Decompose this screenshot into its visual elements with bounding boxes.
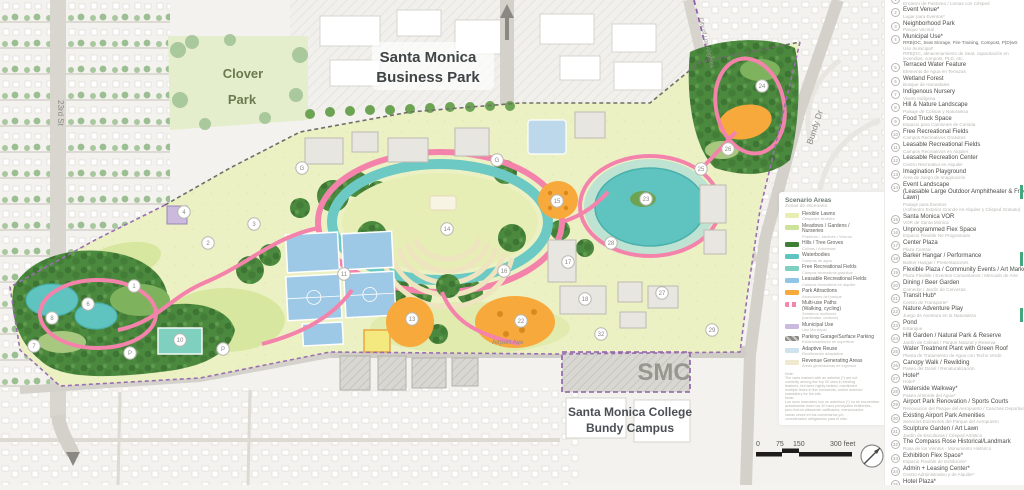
numbered-marker[interactable]: 2: [202, 237, 214, 249]
legend-item-subtitle: Plaza Flexible / Eventos Comunitarios / …: [903, 273, 1024, 278]
svg-text:26: 26: [725, 147, 732, 153]
legend-item-number: 2: [891, 8, 900, 17]
legend-item-number: 5: [891, 63, 900, 72]
scenario-legend-item: Revenue Generating AreasÁreas generadora…: [785, 359, 888, 369]
scenario-legend-item: Flexible LawnsCéspedes flexibles: [785, 212, 888, 222]
svg-text:75: 75: [776, 441, 784, 448]
numbered-marker[interactable]: 17: [562, 256, 574, 268]
label-college-2: Bundy Campus: [586, 421, 674, 435]
scenario-item-subtitle: Campos recreativos en alquiler: [802, 283, 866, 287]
legend-item-subtitle: Planta de Tratamiento de Agua con Techo …: [903, 353, 1008, 358]
scenario-item-subtitle: Atracciones del parque: [802, 295, 842, 299]
legend-item-label: The Compass Rose Historical/Landmark: [903, 439, 1011, 446]
legend-item-subtitle: Campos Recreativos Gratuitos: [903, 135, 968, 140]
legend-item-subtitle: Centro Recreativo en Alquiler: [903, 162, 978, 167]
legend-item-subtitle: Espacio Flexible No Programado: [903, 233, 976, 238]
legend-item-number: 10: [891, 130, 900, 139]
legend-item-label: Existing Airport Park Amenities: [903, 413, 999, 420]
legend-item-subtitle: Vivero Indígena: [903, 96, 955, 101]
legend-item[interactable]: 21Transit Hub*Centro de Transporte*: [891, 293, 1024, 305]
garage-marker[interactable]: G: [296, 162, 308, 174]
svg-text:11: 11: [341, 272, 348, 278]
numbered-marker[interactable]: 25: [695, 163, 707, 175]
scenario-item-subtitle: Praderas / Jardines / Viveros: [802, 235, 852, 239]
edge-tick: [1020, 185, 1023, 199]
svg-text:G: G: [300, 166, 305, 172]
legend-item[interactable]: 22Nature Adventure PlayJuego de Aventura…: [891, 306, 1024, 318]
svg-text:17: 17: [565, 260, 572, 266]
numbered-marker[interactable]: 24: [756, 80, 768, 92]
legend-item-label: Hill & Nature Landscape: [903, 102, 968, 109]
legend-item[interactable]: 23PondEstanque: [891, 320, 1024, 332]
edge-tick: [1020, 252, 1023, 266]
legend-item-number: 16: [891, 228, 900, 237]
legend-item[interactable]: 13Imagination PlaygroundÁrea de Juego de…: [891, 169, 1024, 181]
legend-item-label: Airport Park Renovation / Sports Courts: [903, 399, 1024, 406]
legend-item-label: Pond: [903, 320, 922, 327]
scenario-swatch: [785, 254, 799, 259]
legend-item-number: 14: [891, 183, 900, 192]
legend-item-number: 26: [891, 361, 900, 370]
legend-item-number: 29: [891, 400, 900, 409]
svg-text:22: 22: [518, 319, 525, 325]
legend-item[interactable]: 2Event Venue*Lugar para Eventos*: [891, 7, 1024, 19]
scenario-legend-item: Hills / Tree GrovesColinas / Arboledas: [785, 241, 888, 251]
legend-item-label: Sculpture Garden / Art Lawn: [903, 426, 982, 433]
legend-item-number: 31: [891, 427, 900, 436]
scenario-item-subtitle: Reutilización adaptativa: [802, 352, 843, 356]
clover-park: [168, 34, 308, 130]
scenario-legend: Scenario Areas Zonas de escenario Flexib…: [779, 192, 893, 425]
legend-item-subtitle: Barker Hangar / Presentaciones: [903, 260, 981, 265]
legend-item-number: 22: [891, 307, 900, 316]
numbered-marker[interactable]: 27: [656, 287, 668, 299]
legend-item[interactable]: 30Existing Airport Park AmenitiesServici…: [891, 413, 1024, 425]
svg-text:P: P: [221, 347, 225, 353]
scenario-item-subtitle: Colinas / Arboledas: [802, 247, 843, 251]
svg-text:25: 25: [698, 167, 705, 173]
svg-text:16: 16: [501, 269, 508, 275]
legend-item[interactable]: 4Municipal Use*RRB|OC, Seat Storage, Fir…: [891, 34, 1024, 61]
garage-marker[interactable]: G: [491, 154, 503, 166]
numbered-marker[interactable]: 11: [338, 268, 350, 280]
legend-panel[interactable]: 1Grazing Enclosure / KnollsEncierro de P…: [884, 0, 1024, 485]
svg-text:32: 32: [598, 332, 605, 338]
legend-item-number: 33: [891, 454, 900, 463]
legend-item[interactable]: 3Neighborhood ParkParque Vecinal: [891, 21, 1024, 33]
legend-item-label: Event Venue*: [903, 7, 945, 14]
numbered-marker[interactable]: 26: [722, 143, 734, 155]
legend-item-label: Flexible Plaza / Community Events / Art …: [903, 267, 1024, 274]
legend-item-subtitle: Paseo al Borde del Agua*: [903, 393, 958, 398]
legend-item-subtitle: Jardín de Esculturas / Césped Artístico: [903, 433, 982, 438]
legend-item-label: Neighborhood Park: [903, 21, 955, 28]
legend-item[interactable]: 15Santa Monica VORVOR de Santa Mónica: [891, 214, 1024, 226]
legend-item[interactable]: 35Hotel Plaza*Plaza del Hotel*: [891, 479, 1024, 485]
legend-item-number: 25: [891, 347, 900, 356]
numbered-marker[interactable]: 28: [605, 237, 617, 249]
legend-item[interactable]: 7Indigenous NurseryVivero Indígena: [891, 89, 1024, 101]
legend-item[interactable]: 14Event Landscape (Leasable Large Outdoo…: [891, 182, 1024, 212]
scenario-legend-subtitle: Zonas de escenario: [785, 204, 888, 209]
scenario-swatch: [785, 302, 799, 307]
scenario-item-subtitle: Estacionamiento en superficie: [802, 340, 874, 344]
legend-item[interactable]: 5Terraced Water FeatureElemento de Agua …: [891, 62, 1024, 74]
scenario-swatch: [785, 213, 799, 218]
legend-item-subtitle: RRB|OC, almacenamiento de Seat, capacita…: [903, 51, 1018, 61]
legend-item-number: 15: [891, 215, 900, 224]
legend-item-number: 6: [891, 77, 900, 86]
legend-item[interactable]: 32The Compass Rose Historical/LandmarkRo…: [891, 439, 1024, 451]
legend-item-subtitle: Rosa de los Vientos - Monumento Históric…: [903, 446, 1011, 451]
legend-item-label: Canopy Walk / Rewilding: [903, 360, 975, 367]
legend-item-label: Exhibition Flex Space*: [903, 453, 967, 460]
numbered-marker[interactable]: 14: [441, 223, 453, 235]
legend-item-number: 21: [891, 294, 900, 303]
scenario-legend-item: Parking Garage/Surface ParkingEstacionam…: [785, 335, 888, 345]
numbered-marker[interactable]: 8: [46, 312, 58, 324]
legend-item[interactable]: 24Hill Garden / Natural Park & ReserveJa…: [891, 333, 1024, 345]
scenario-item-subtitle: Senderos multiusos (caminatas, ciclismo): [802, 312, 841, 320]
scenario-swatch: [785, 360, 799, 365]
legend-item-subtitle: VOR de Santa Mónica: [903, 220, 954, 225]
legend-item[interactable]: 1Grazing Enclosure / KnollsEncierro de P…: [891, 0, 1024, 6]
svg-text:13: 13: [409, 317, 416, 323]
legend-item-number: 27: [891, 374, 900, 383]
svg-text:G: G: [495, 158, 500, 164]
label-airport-ave: Airport Ave: [492, 339, 524, 346]
legend-item-number: 30: [891, 414, 900, 423]
svg-text:10: 10: [177, 338, 184, 344]
legend-item-label: Water Treatment Plant with Green Roof: [903, 346, 1008, 353]
legend-item-number: 8: [891, 103, 900, 112]
legend-item-number: 13: [891, 170, 900, 179]
legend-item-subtitle: Jardín de Colinas / Parque Natural y Res…: [903, 340, 1001, 345]
legend-item-subtitle: Servicios Existentes del Parque del Aero…: [903, 419, 999, 424]
legend-item-number: 23: [891, 321, 900, 330]
label-clover-park-2: Park: [228, 92, 257, 107]
legend-item-label: Municipal Use*: [903, 34, 1018, 41]
legend-item-subtitle: Comedor / Jardín de Cervezas: [903, 287, 966, 292]
legend-item-subtitle: Paisaje para Eventos (Anfiteatro Exterio…: [903, 202, 1024, 212]
legend-item-subtitle: Centro Administrativo y de Alquiler*: [903, 472, 975, 477]
scenario-item-subtitle: Campos recreativos gratuitos: [802, 271, 856, 275]
label-clover-park: Clover: [223, 66, 263, 81]
legend-item[interactable]: 11Leasable Recreational FieldsCampos Rec…: [891, 142, 1024, 154]
legend-item-subtitle: Espacio para Camiones de Comida: [903, 122, 975, 127]
parking-marker[interactable]: P: [124, 347, 136, 359]
legend-item-number: 17: [891, 241, 900, 250]
legend-item[interactable]: 28Waterside Walkway*Paseo al Borde del A…: [891, 386, 1024, 398]
legend-item-label: Center Plaza: [903, 240, 938, 247]
parking-marker[interactable]: P: [217, 343, 229, 355]
scenario-legend-item: Free Recreational FieldsCampos recreativ…: [785, 265, 888, 275]
svg-text:0: 0: [756, 441, 760, 448]
scenario-swatch: [785, 290, 799, 295]
legend-item-number: 4: [891, 35, 900, 44]
legend-item-number: 18: [891, 254, 900, 263]
numbered-marker[interactable]: 16: [498, 265, 510, 277]
legend-item-number: 12: [891, 156, 900, 165]
legend-item-number: 32: [891, 440, 900, 449]
legend-item[interactable]: 29Airport Park Renovation / Sports Court…: [891, 399, 1024, 411]
legend-item-subtitle: Paseo del Dosel / Renaturalización: [903, 366, 975, 371]
legend-item-subtitle: Bosque de Humedales: [903, 82, 949, 87]
legend-item-label: Waterside Walkway*: [903, 386, 958, 393]
numbered-marker[interactable]: 22: [515, 315, 527, 327]
scenario-item-subtitle: Céspedes flexibles: [802, 217, 835, 221]
svg-text:28: 28: [608, 241, 615, 247]
legend-item[interactable]: 16Unprogrammed Flex SpaceEspacio Flexibl…: [891, 227, 1024, 239]
legend-item-label: Free Recreational Fields: [903, 129, 968, 136]
legend-item[interactable]: 25Water Treatment Plant with Green RoofP…: [891, 346, 1024, 358]
legend-item[interactable]: 31Sculpture Garden / Art LawnJardín de E…: [891, 426, 1024, 438]
legend-item-label: Transit Hub*: [903, 293, 948, 300]
legend-item-label: Leasable Recreation Center: [903, 155, 978, 162]
legend-item-label: Barker Hangar / Performance: [903, 253, 981, 260]
numbered-marker[interactable]: 10: [174, 334, 186, 346]
legend-item[interactable]: 19Flexible Plaza / Community Events / Ar…: [891, 267, 1024, 279]
legend-item-label: Terraced Water Feature: [903, 62, 966, 69]
legend-item[interactable]: 10Free Recreational FieldsCampos Recreat…: [891, 129, 1024, 141]
legend-item-label: Wetland Forest: [903, 76, 949, 83]
legend-item[interactable]: 20Dining / Beer GardenComedor / Jardín d…: [891, 280, 1024, 292]
scenario-swatch: [785, 266, 799, 271]
svg-text:300 feet: 300 feet: [830, 441, 855, 448]
legend-item-subtitle: Plaza Central: [903, 247, 938, 252]
scenario-item-subtitle: Uso Municipal: [802, 328, 833, 332]
legend-item[interactable]: 26Canopy Walk / RewildingPaseo del Dosel…: [891, 360, 1024, 372]
numbered-marker[interactable]: 4: [178, 206, 190, 218]
scenario-legend-item: Adaptive ReuseReutilización adaptativa: [785, 347, 888, 357]
legend-item[interactable]: 17Center PlazaPlaza Central: [891, 240, 1024, 252]
legend-item-label: Leasable Recreational Fields: [903, 142, 980, 149]
legend-item-number: 28: [891, 387, 900, 396]
legend-item-subtitle: Lugar para Eventos*: [903, 14, 945, 19]
legend-item-subtitle: Área de Juego de Imaginación: [903, 175, 966, 180]
label-23rd-st: 23rd St: [56, 100, 65, 127]
svg-text:14: 14: [444, 227, 451, 233]
legend-item[interactable]: 8Hill & Nature LandscapePaisaje de Colin…: [891, 102, 1024, 114]
legend-item-label: Dining / Beer Garden: [903, 280, 966, 287]
legend-item-subtitle: Centro de Transporte*: [903, 300, 948, 305]
legend-item-subtitle: Estanque: [903, 326, 922, 331]
legend-item-number: 24: [891, 334, 900, 343]
svg-text:24: 24: [759, 84, 766, 90]
legend-item-number: 35: [891, 480, 900, 485]
scenario-swatch: [785, 278, 799, 283]
svg-text:27: 27: [659, 291, 666, 297]
numbered-marker[interactable]: 29: [706, 324, 718, 336]
numbered-marker[interactable]: 7: [28, 340, 40, 352]
label-business-park: Santa Monica: [380, 49, 477, 66]
legend-item-subtitle: Parque Vecinal: [903, 27, 955, 32]
legend-item[interactable]: 6Wetland ForestBosque de Humedales: [891, 76, 1024, 88]
legend-item-number: 7: [891, 90, 900, 99]
numbered-marker[interactable]: 18: [579, 293, 591, 305]
scenario-legend-item: Leasable Recreational FieldsCampos recre…: [785, 277, 888, 287]
numbered-marker[interactable]: 32: [595, 328, 607, 340]
svg-text:18: 18: [582, 297, 589, 303]
legend-item-number: 19: [891, 268, 900, 277]
scenario-legend-item: Meadows / Gardens / NurseriesPraderas / …: [785, 224, 888, 239]
legend-item-number: 3: [891, 22, 900, 31]
scenario-swatch: [785, 242, 799, 247]
legend-item-label: Indigenous Nursery: [903, 89, 955, 96]
legend-item-subtitle: Renovación del Parque del Aeropuerto / C…: [903, 406, 1024, 411]
numbered-marker[interactable]: 23: [640, 193, 652, 205]
legend-item-subtitle: Elemento de Agua en Terrazas: [903, 69, 966, 74]
svg-text:29: 29: [709, 328, 716, 334]
legend-item-subtitle: Juego de Aventura en la Naturaleza: [903, 313, 976, 318]
scenario-legend-note: Note: The uses marked with an asterisk (…: [785, 372, 888, 421]
legend-item-subtitle: Espacio Flexible de Exhibición*: [903, 459, 967, 464]
scenario-legend-item: Municipal UseUso Municipal: [785, 323, 888, 333]
svg-text:15: 15: [554, 199, 561, 205]
scenario-legend-item: WaterbodiesCuerpos de agua: [785, 253, 888, 263]
legend-item-label: Hotel*: [903, 373, 919, 380]
legend-item-subtitle: Hotel*: [903, 379, 919, 384]
scenario-swatch: [785, 348, 799, 353]
scenario-swatch: [785, 336, 799, 341]
scenario-item-subtitle: Áreas generadoras de ingresos: [802, 364, 862, 368]
legend-item[interactable]: 18Barker Hangar / PerformanceBarker Hang…: [891, 253, 1024, 265]
svg-text:23: 23: [643, 197, 650, 203]
legend-item-label: Unprogrammed Flex Space: [903, 227, 976, 234]
legend-item[interactable]: 9Food Truck SpaceEspacio para Camiones d…: [891, 116, 1024, 128]
legend-item-detail: RRB|OC, Seat Storage, Fire Training, Com…: [903, 40, 1018, 45]
legend-item-label: Event Landscape (Leasable Large Outdoor …: [903, 182, 1024, 202]
legend-item[interactable]: 27Hotel*Hotel*: [891, 373, 1024, 385]
scenario-swatch: [785, 225, 799, 230]
legend-item-label: Hill Garden / Natural Park & Reserve: [903, 333, 1001, 340]
numbered-marker[interactable]: 15: [551, 195, 563, 207]
numbered-marker[interactable]: 1: [128, 280, 140, 292]
legend-item-number: 11: [891, 143, 900, 152]
svg-text:P: P: [128, 351, 132, 357]
numbered-marker[interactable]: 3: [248, 218, 260, 230]
legend-item-label: Admin + Leasing Center*: [903, 466, 975, 473]
legend-item-label: Food Truck Space: [903, 116, 975, 123]
scenario-legend-title: Scenario Areas: [785, 197, 888, 204]
label-smc: SMC: [637, 359, 690, 386]
numbered-marker[interactable]: 13: [406, 313, 418, 325]
legend-item[interactable]: 34Admin + Leasing Center*Centro Administ…: [891, 466, 1024, 478]
legend-item-subtitle: Encierro de Pastoreo / Lomas con Césped: [903, 1, 990, 6]
legend-item-label: Nature Adventure Play: [903, 306, 976, 313]
label-college: Santa Monica College: [568, 405, 692, 419]
legend-item-subtitle: Paisaje de Colinas y Naturaleza: [903, 109, 968, 114]
legend-item-label: Santa Monica VOR: [903, 214, 954, 221]
scenario-legend-item: Multi-use Paths (Walking, cycling)Sender…: [785, 301, 888, 320]
legend-item-number: 1: [891, 0, 900, 4]
numbered-marker[interactable]: 6: [82, 298, 94, 310]
legend-item-number: 34: [891, 467, 900, 476]
scenario-legend-item: Park AttractionsAtracciones del parque: [785, 289, 888, 299]
scenario-swatch: [785, 324, 799, 329]
svg-text:150: 150: [793, 441, 805, 448]
label-business-park-2: Business Park: [376, 69, 480, 86]
legend-item[interactable]: 12Leasable Recreation CenterCentro Recre…: [891, 155, 1024, 167]
edge-tick: [1020, 308, 1023, 322]
legend-item-label: Hotel Plaza*: [903, 479, 936, 485]
legend-item[interactable]: 33Exhibition Flex Space*Espacio Flexible…: [891, 453, 1024, 465]
legend-item-subtitle: Campos Recreativos en Alquiler: [903, 149, 980, 154]
legend-item-number: 20: [891, 281, 900, 290]
legend-item-number: 9: [891, 117, 900, 126]
scenario-item-subtitle: Cuerpos de agua: [802, 259, 832, 263]
north-arrow: [861, 445, 883, 467]
